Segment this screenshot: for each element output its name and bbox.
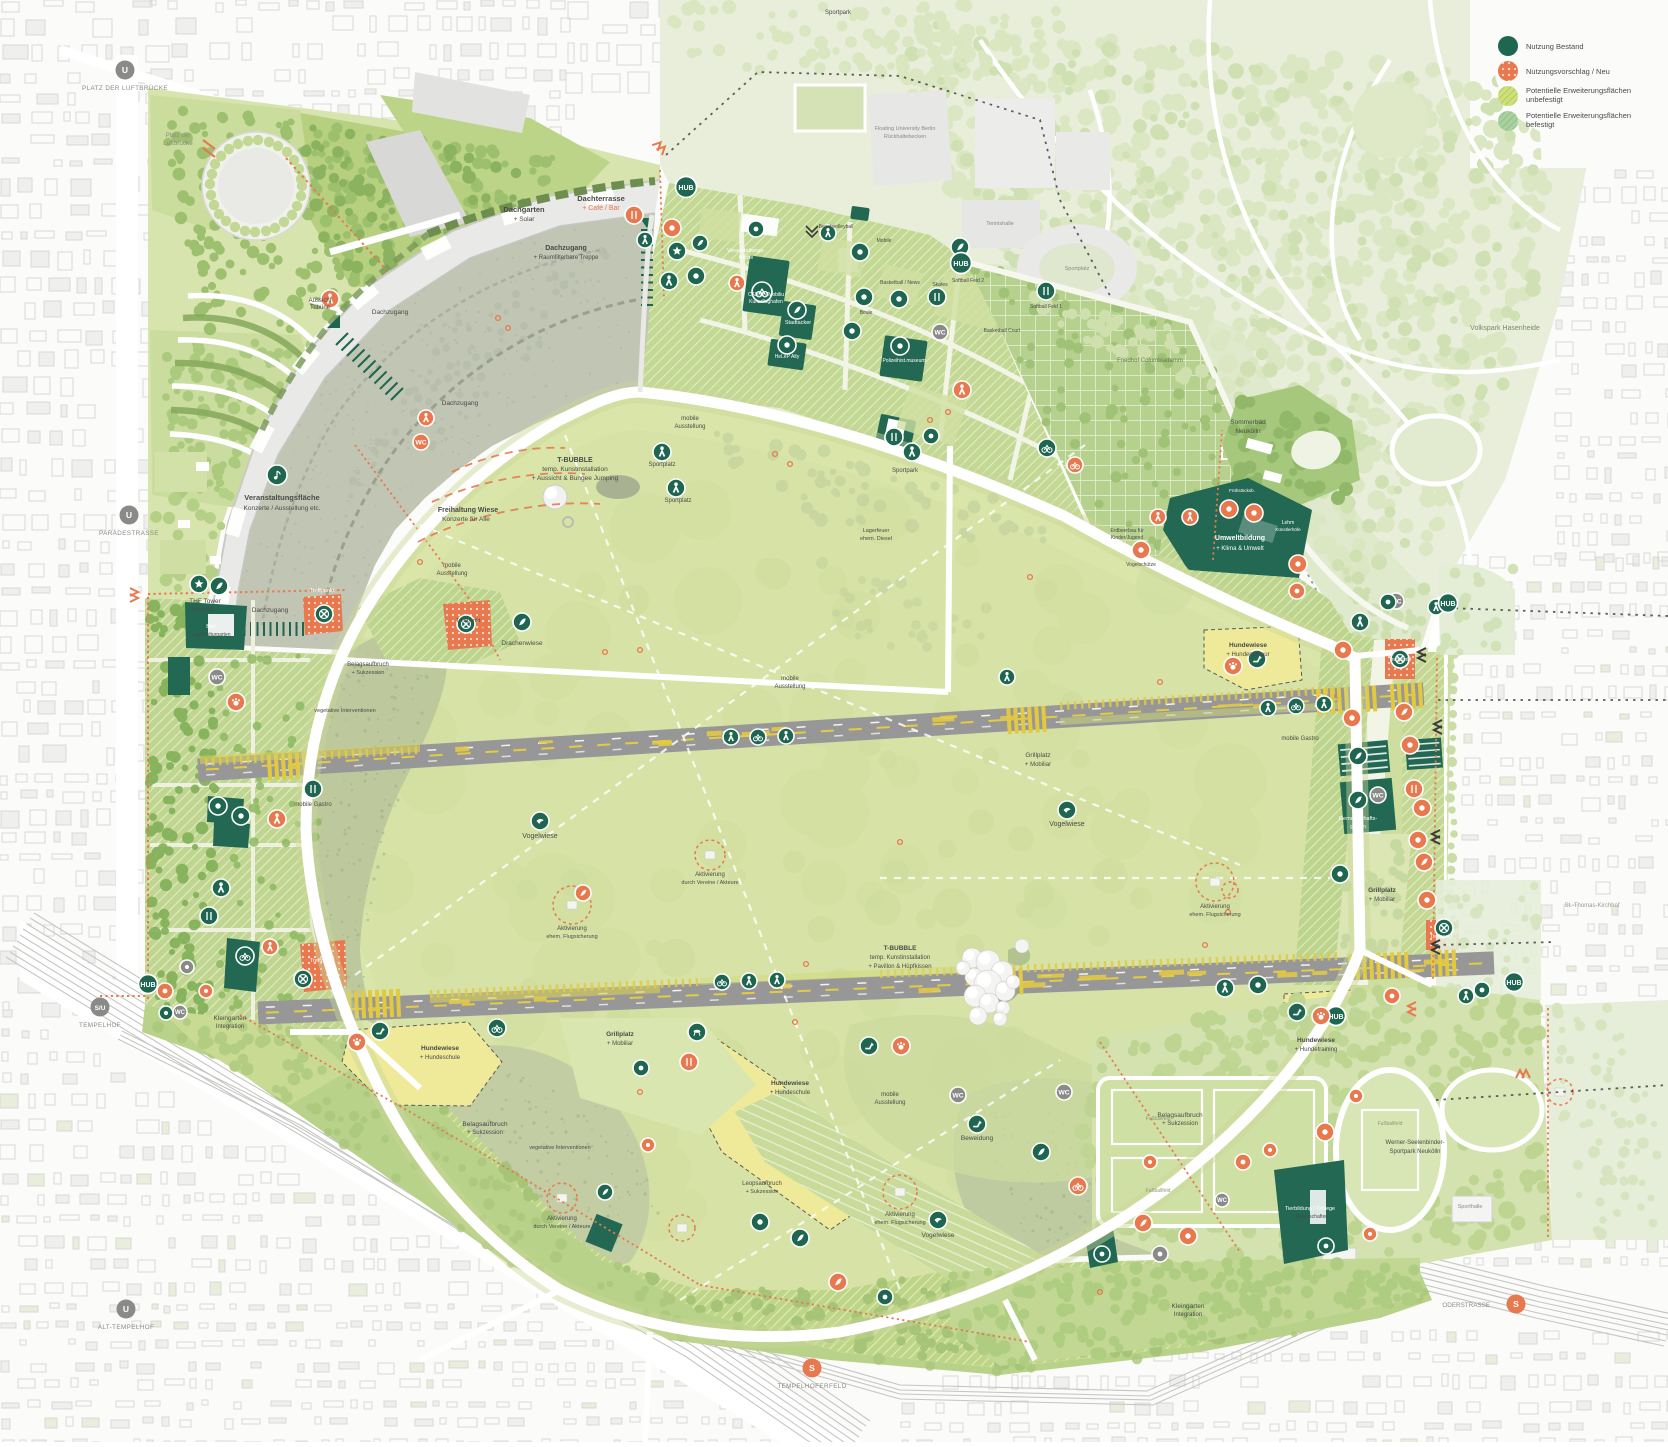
svg-text:WC: WC: [1372, 793, 1383, 800]
svg-text:S: S: [809, 1363, 815, 1373]
svg-text:Konzerte / Ausstellung etc.: Konzerte / Ausstellung etc.: [244, 505, 321, 512]
svg-text:ehem. Flugsicherung: ehem. Flugsicherung: [1189, 912, 1240, 918]
svg-text:durch Vereine / Akteure: durch Vereine / Akteure: [681, 880, 738, 886]
svg-text:HUB: HUB: [678, 185, 693, 192]
svg-text:mobile: mobile: [443, 563, 461, 569]
svg-text:WC: WC: [1058, 1090, 1069, 1097]
svg-text:Ausstellung: Ausstellung: [674, 424, 705, 430]
svg-text:+ Aussicht & Bungee Jumping: + Aussicht & Bungee Jumping: [532, 475, 619, 482]
svg-text:Aktivierung: Aktivierung: [1200, 904, 1230, 910]
svg-text:PLATZ DER LUFTBRÜCKE: PLATZ DER LUFTBRÜCKE: [82, 84, 168, 92]
svg-text:Aussicht: Aussicht: [191, 607, 214, 613]
svg-text:WC: WC: [211, 675, 222, 682]
svg-text:WC: WC: [175, 1010, 186, 1016]
svg-text:WC: WC: [415, 440, 426, 447]
svg-text:Konzerte für Alle: Konzerte für Alle: [442, 516, 490, 523]
svg-text:TEMPELHOFERFELD: TEMPELHOFERFELD: [777, 1383, 846, 1390]
svg-text:PARADESTRASSE: PARADESTRASSE: [99, 530, 159, 537]
svg-text:U: U: [126, 510, 132, 520]
svg-text:Hundewiese: Hundewiese: [771, 1080, 809, 1087]
svg-text:T-BUBBLE: T-BUBBLE: [884, 945, 918, 952]
svg-text:+ Café / Bar: + Café / Bar: [582, 205, 620, 212]
svg-text:+ Hundeschule: + Hundeschule: [770, 1090, 811, 1096]
svg-text:Tribüne: Tribüne: [310, 305, 331, 311]
svg-text:+ Raumfilterbare Treppe: + Raumfilterbare Treppe: [534, 255, 600, 261]
svg-text:temp. Kunstinstallation: temp. Kunstinstallation: [870, 955, 930, 961]
svg-text:ODERSTRASSE: ODERSTRASSE: [1442, 1302, 1490, 1309]
svg-text:Vogelwiese: Vogelwiese: [522, 833, 558, 840]
svg-text:ALT-TEMPELHOF: ALT-TEMPELHOF: [98, 1324, 155, 1331]
svg-text:HUB: HUB: [140, 982, 155, 989]
svg-text:HUB: HUB: [953, 261, 968, 268]
svg-text:WC: WC: [1217, 1198, 1228, 1204]
svg-text:Dachzugang: Dachzugang: [372, 309, 409, 316]
svg-text:temp. Kunstinstallation: temp. Kunstinstallation: [542, 466, 608, 473]
svg-text:+ Solar: + Solar: [514, 216, 536, 223]
svg-text:Beweidung: Beweidung: [961, 1135, 994, 1142]
svg-text:Dachgarten: Dachgarten: [503, 205, 545, 214]
svg-text:Hundewiese: Hundewiese: [421, 1045, 459, 1052]
svg-text:Dachzugang: Dachzugang: [442, 400, 479, 407]
svg-text:Freihaltung Wiese: Freihaltung Wiese: [438, 507, 498, 514]
svg-text:Aktivierung: Aktivierung: [547, 1216, 577, 1222]
svg-text:Aktivierung: Aktivierung: [695, 872, 725, 878]
svg-text:HUB: HUB: [1506, 980, 1521, 987]
svg-text:+ Hundeschule: + Hundeschule: [420, 1055, 461, 1061]
svg-text:HUB: HUB: [1440, 601, 1455, 608]
svg-text:S/U: S/U: [95, 1005, 106, 1012]
svg-text:U: U: [123, 1304, 129, 1314]
svg-text:ehem. Flugsicherung: ehem. Flugsicherung: [874, 1220, 925, 1226]
svg-text:Drachenwiese: Drachenwiese: [501, 640, 543, 647]
svg-text:+ Pavillon & Hüpfkissen: + Pavillon & Hüpfkissen: [868, 964, 931, 970]
svg-text:S: S: [1513, 1299, 1519, 1309]
svg-text:Dachzugang: Dachzugang: [252, 607, 289, 614]
svg-text:Dachterrasse: Dachterrasse: [577, 194, 625, 203]
svg-text:Vogelwiese: Vogelwiese: [922, 1232, 955, 1239]
svg-text:Platz der: Platz der: [166, 132, 191, 139]
svg-text:Aktivierung: Aktivierung: [885, 1212, 915, 1218]
svg-text:TEMPELHOF: TEMPELHOF: [79, 1022, 121, 1029]
svg-text:T-BUBBLE: T-BUBBLE: [557, 457, 593, 464]
svg-text:WC: WC: [934, 330, 945, 337]
svg-text:Aussicht: Aussicht: [309, 298, 332, 304]
svg-text:Luftbrücke: Luftbrücke: [163, 140, 193, 147]
svg-text:Sportplatz: Sportplatz: [664, 498, 691, 504]
svg-text:Ausstellung: Ausstellung: [436, 571, 467, 577]
svg-text:ehem. Flugsicherung: ehem. Flugsicherung: [546, 934, 597, 940]
svg-text:Aktivierung: Aktivierung: [557, 926, 587, 932]
svg-text:Veranstaltungsfläche: Veranstaltungsfläche: [244, 493, 319, 502]
svg-text:mobile: mobile: [681, 416, 699, 422]
svg-text:Sportplatz: Sportplatz: [648, 462, 675, 468]
svg-text:durch Vereine / Akteure: durch Vereine / Akteure: [533, 1224, 590, 1230]
svg-text:Dachzugang: Dachzugang: [545, 245, 587, 252]
svg-text:U: U: [122, 65, 128, 75]
svg-text:Vogelwiese: Vogelwiese: [1049, 821, 1085, 828]
svg-text:THF Tower: THF Tower: [189, 598, 221, 605]
svg-text:WC: WC: [952, 1093, 963, 1100]
